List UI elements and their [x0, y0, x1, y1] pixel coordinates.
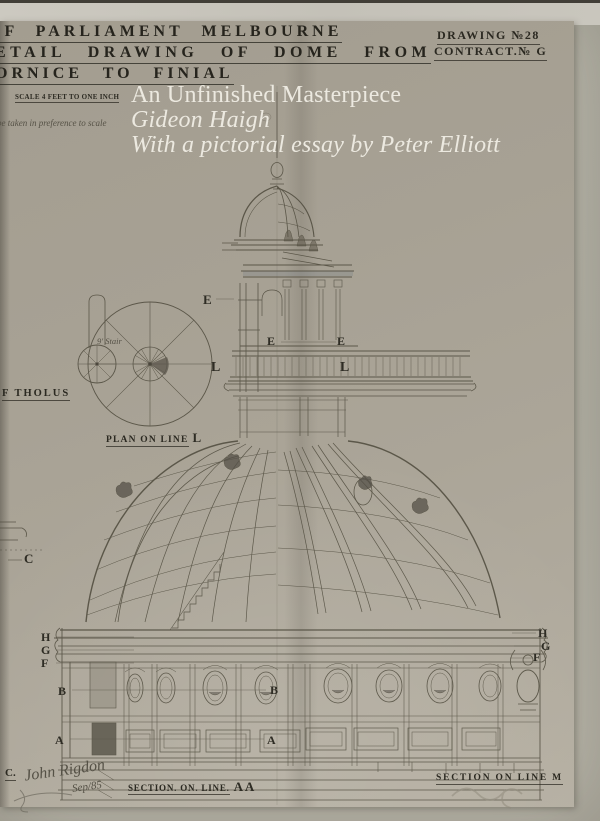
- section-aa-caption: SECTION. ON. LINE. A A: [128, 778, 254, 796]
- stair-section: [170, 552, 224, 630]
- drawing-number: DRAWING №28: [437, 28, 540, 45]
- plan-caption: PLAN ON LINE L: [106, 429, 201, 447]
- stair-note: 9′ Stair: [97, 336, 122, 346]
- drawing-ink: [0, 86, 548, 812]
- cover-subtitle: With a pictorial essay by Peter Elliott: [131, 133, 500, 158]
- section-aa-text: SECTION. ON. LINE.: [128, 783, 230, 795]
- cover-title: An Unfinished Masterpiece: [131, 83, 500, 108]
- sheet-title-line2: ETAIL DRAWING OF DOME FROM: [0, 44, 431, 64]
- pencil-scribbles: [452, 788, 522, 808]
- scale-note: be taken in preference to scale: [0, 118, 107, 128]
- ref-letter-l-left: L: [211, 360, 220, 376]
- ref-letter-c: C: [24, 551, 33, 567]
- ref-letter-e-lantern: E: [203, 292, 212, 308]
- ref-letter-g-right: G: [541, 639, 550, 654]
- gallery-balcony: [224, 351, 476, 438]
- ref-letter-e-right: E: [337, 334, 345, 349]
- ref-letter-a-left: A: [55, 733, 64, 748]
- ref-letter-f-right: F: [533, 650, 540, 665]
- ref-letter-b-left: B: [58, 684, 66, 699]
- ref-letter-a-center: A: [267, 733, 276, 748]
- scale-label: SCALE 4 FEET TO ONE INCH: [15, 93, 119, 103]
- cover-author: Gideon Haigh: [131, 108, 500, 133]
- section-m-caption: SECTION ON LINE M: [436, 773, 563, 785]
- tholus-label: F THOLUS: [2, 388, 70, 401]
- plan-caption-letter: L: [193, 430, 202, 445]
- ref-letter-l-right: L: [340, 360, 349, 376]
- signature-prefix: C.: [5, 767, 16, 781]
- cupola: [222, 186, 334, 267]
- drum: [62, 662, 540, 766]
- drum-cornice: [54, 628, 548, 662]
- ref-letter-f-left: F: [41, 656, 48, 671]
- ref-letter-b-center: B: [270, 683, 278, 698]
- main-dome: [86, 441, 500, 622]
- dome-sculptures: [116, 454, 428, 514]
- leader-lines: [56, 299, 538, 739]
- plan-caption-text: PLAN ON LINE: [106, 435, 189, 447]
- plan-on-line-l: [78, 295, 212, 426]
- sheet-title-line1: OF PARLIAMENT MELBOURNE: [0, 23, 342, 43]
- left-margin-fragment: [0, 522, 44, 560]
- section-aa-letters: A A: [234, 779, 255, 794]
- book-cover: OF PARLIAMENT MELBOURNE ETAIL DRAWING OF…: [0, 0, 600, 821]
- cover-text-block: An Unfinished Masterpiece Gideon Haigh W…: [131, 83, 500, 158]
- ref-letter-e-left: E: [267, 334, 275, 349]
- signature-flourish: [14, 790, 72, 812]
- contract-number: CONTRACT.№ G: [434, 44, 547, 61]
